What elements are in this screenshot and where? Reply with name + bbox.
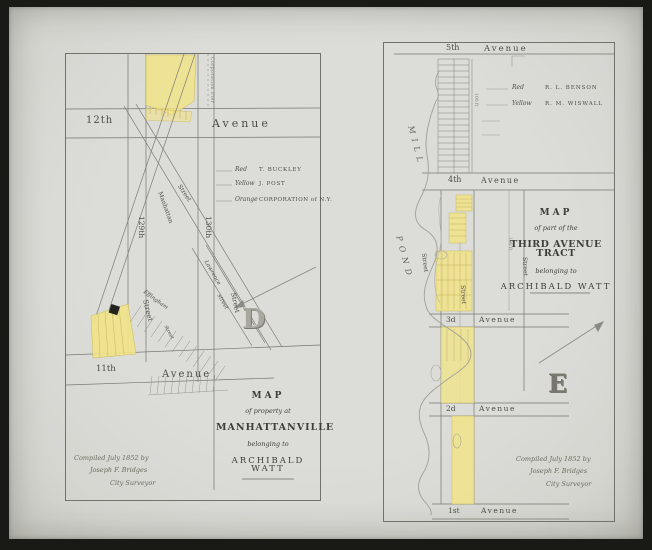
avenue-5-word: Avenue (484, 45, 528, 54)
left-legend-leaders (216, 171, 232, 201)
avenue-3-number: 3d (446, 316, 456, 324)
left-map-panel: 12th Avenue Corporation Pier 129th 130th… (65, 53, 321, 501)
avenue-1-number: 1st (448, 507, 460, 515)
avenue-11-number: 11th (96, 365, 116, 374)
right-legend-name-wiswall: R. M. WISWALL (545, 102, 603, 108)
left-title-place: MANHATTANVILLE (216, 423, 320, 433)
right-title-block: MAP of part of the THIRD AVENUE TRACT be… (496, 209, 616, 292)
legend-name-corporation: CORPORATION of N.Y. (259, 198, 332, 204)
right-map-panel: 5th Avenue 4th Avenue 3d Avenue 2d Avenu… (383, 42, 615, 522)
corporation-pier-label: Corporation Pier (209, 57, 214, 103)
right-title-owner: ARCHIBALD WATT (496, 283, 616, 292)
yellow-parcels-right (436, 195, 474, 504)
left-title-owner: ARCHIBALD WATT (216, 457, 320, 474)
lot-grid-top (438, 59, 472, 173)
right-title-sub2: belonging to (496, 268, 616, 275)
legend-color-yellow: Yellow (235, 181, 255, 187)
left-title-block: MAP of property at MANHATTANVILLE belong… (216, 392, 320, 474)
right-credit-line3: City Surveyor (516, 478, 621, 490)
left-credit-block: Compiled July 1852 by Joseph F. Bridges … (74, 452, 204, 489)
scanned-map-sheet: 12th Avenue Corporation Pier 129th 130th… (0, 0, 652, 550)
left-credit-line3: City Surveyor (74, 477, 204, 489)
avenue-12-number: 12th (86, 116, 113, 126)
plate-letter-d: D (242, 306, 265, 333)
yellow-parcel-bottom (91, 304, 136, 358)
right-legend-leaders (482, 56, 525, 135)
right-credit-line1: Compiled July 1852 by (516, 453, 621, 465)
avenue-11-word: Avenue (162, 370, 211, 380)
avenue-1-word: Avenue (481, 507, 518, 515)
left-credit-line1: Compiled July 1852 by (74, 452, 204, 464)
right-legend-color-red: Red (512, 85, 524, 91)
right-credit-block: Compiled July 1852 by Joseph F. Bridges … (516, 453, 621, 490)
dimension-100ft-top: 100 ft (473, 93, 478, 107)
legend-color-red: Red (235, 167, 247, 173)
street-130-label: 130th (205, 216, 213, 238)
left-title-sub1: of property at (216, 408, 320, 415)
avenue-3-word: Avenue (479, 316, 516, 324)
right-street-label-b: Street (459, 285, 466, 304)
left-credit-line2: Joseph F. Bridges (74, 464, 204, 476)
avenue-4-number: 4th (448, 176, 461, 184)
left-title-sub2: belonging to (216, 441, 320, 448)
right-title-map: MAP (496, 209, 616, 218)
avenue-2-number: 2d (446, 405, 456, 413)
plate-letter-e: E (548, 371, 567, 396)
right-legend-color-yellow: Yellow (512, 101, 532, 107)
legend-color-orange: Orange (235, 197, 258, 203)
right-legend-name-benson: R. L. BENSON (545, 86, 598, 92)
legend-name-buckley: T. BUCKLEY (259, 168, 302, 174)
right-title-sub1: of part of the (496, 225, 616, 232)
right-title-tract: THIRD AVENUE TRACT (496, 240, 616, 259)
avenue-2-word: Avenue (479, 405, 516, 413)
legend-name-post: J. POST (259, 182, 286, 188)
avenue-5-number: 5th (446, 44, 459, 52)
yellow-parcel-top (146, 55, 196, 122)
right-street-label-a: Street (420, 253, 428, 272)
right-credit-line2: Joseph F. Bridges (516, 465, 621, 477)
left-title-map: MAP (216, 392, 320, 401)
avenue-12-word: Avenue (212, 118, 271, 129)
street-129-label: 129th (138, 216, 146, 238)
avenue-4-word: Avenue (481, 177, 520, 185)
